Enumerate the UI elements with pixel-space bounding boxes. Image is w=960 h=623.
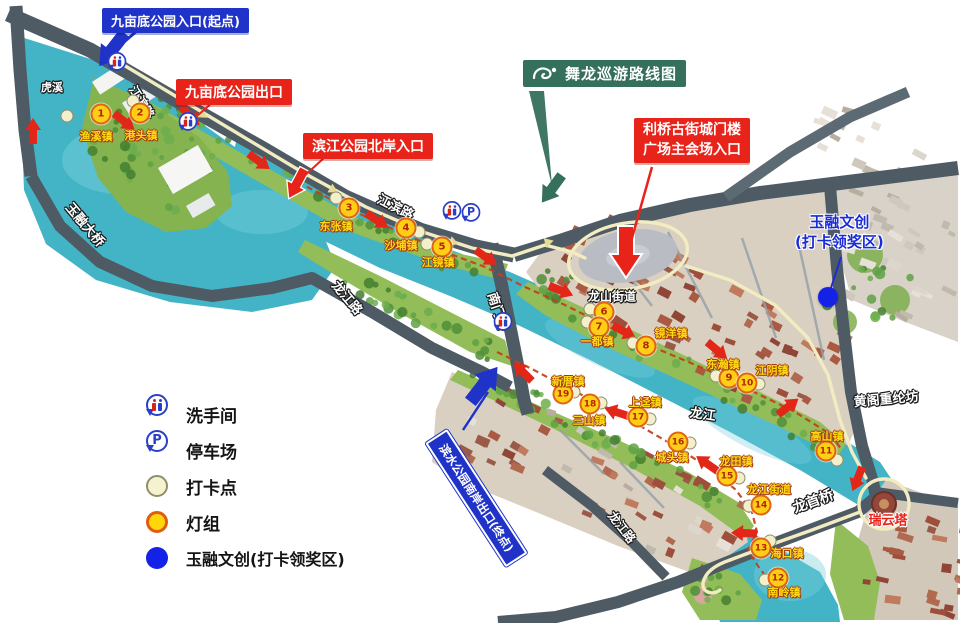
legend: 洗手间 P 停车场 打卡点 灯组 玉融文创(打卡领奖区) <box>142 402 345 570</box>
map-label-0: 虎溪 <box>41 79 63 95</box>
stop-label-13: 海口镇 <box>771 545 804 561</box>
title-text: 舞龙巡游路线图 <box>565 63 677 84</box>
main-venue-banner: 利桥古街城门楼 广场主会场入口 <box>634 118 750 163</box>
checkpoint-dot-icon <box>146 475 168 497</box>
main-venue-line2: 广场主会场入口 <box>643 141 741 161</box>
toilet-pin-icon <box>443 201 462 236</box>
stop-marker-2: 2 <box>130 103 151 124</box>
stop-label-18: 三山镇 <box>573 412 606 428</box>
stop-marker-13: 13 <box>751 538 772 559</box>
award-area-line2: (打卡领奖区) <box>795 232 884 252</box>
map-label-11: 瑞云塔 <box>868 510 907 529</box>
stop-label-15: 龙田镇 <box>720 453 753 469</box>
legend-item-checkpoint: 打卡点 <box>142 474 345 498</box>
north-bank-entrance-banner: 滨江公园北岸入口 <box>303 133 433 159</box>
stop-label-12: 南岭镇 <box>768 584 801 600</box>
title-banner: 舞龙巡游路线图 <box>523 60 686 87</box>
stop-label-19: 新厝镇 <box>552 373 585 389</box>
stop-marker-14: 14 <box>751 495 772 516</box>
stop-marker-10: 10 <box>737 373 758 394</box>
toilet-pin-icon <box>146 394 168 435</box>
parking-pin-icon: P <box>146 430 168 471</box>
stop-label-11: 高山镇 <box>811 428 844 444</box>
legend-label-parking: 停车场 <box>186 438 237 463</box>
stop-label-9: 东瀚镇 <box>707 356 740 372</box>
legend-label-lamp: 灯组 <box>186 510 220 535</box>
stop-label-4: 沙埔镇 <box>385 237 418 253</box>
legend-label-award: 玉融文创(打卡领奖区) <box>186 546 345 570</box>
stop-label-1: 渔溪镇 <box>80 128 113 144</box>
stop-label-16: 城头镇 <box>656 449 689 465</box>
parking-pin-icon: P <box>462 203 481 238</box>
stop-marker-1: 1 <box>91 104 112 125</box>
legend-item-parking: P 停车场 <box>142 438 345 462</box>
legend-label-checkpoint: 打卡点 <box>186 474 237 499</box>
legend-item-lamp: 灯组 <box>142 510 345 534</box>
stop-label-14: 龙江街道 <box>747 481 791 497</box>
stop-marker-3: 3 <box>339 198 360 219</box>
stop-label-2: 港头镇 <box>125 127 158 143</box>
stop-label-7: 一都镇 <box>581 333 614 349</box>
lamp-dot-icon <box>146 511 168 533</box>
legend-label-toilet: 洗手间 <box>186 402 237 427</box>
park-exit-banner: 九亩底公园出口 <box>176 79 292 105</box>
entrance-banner: 九亩底公园入口(起点) <box>102 8 249 33</box>
legend-item-toilet: 洗手间 <box>142 402 345 426</box>
toilet-pin-icon <box>179 112 198 147</box>
stop-marker-4: 4 <box>396 218 417 239</box>
checkpoint-dot <box>61 110 74 123</box>
toilet-pin-icon <box>108 52 127 87</box>
award-point-dot <box>818 287 838 307</box>
award-dot-icon <box>146 547 168 569</box>
stop-label-10: 江阴镇 <box>756 362 789 378</box>
map-label-7: 龙江 <box>689 402 717 424</box>
stop-label-17: 上迳镇 <box>629 394 662 410</box>
award-area-line1: 玉融文创 <box>795 212 884 232</box>
toilet-pin-icon <box>494 312 513 347</box>
main-venue-line1: 利桥古街城门楼 <box>643 121 741 141</box>
legend-item-award: 玉融文创(打卡领奖区) <box>142 546 345 570</box>
award-area-label: 玉融文创 (打卡领奖区) <box>795 212 884 253</box>
dragon-icon <box>532 65 558 83</box>
stop-label-5: 江镜镇 <box>422 254 455 270</box>
map-label-6: 龙山街道 <box>588 288 636 305</box>
stop-label-8: 镜洋镇 <box>655 325 688 341</box>
stop-label-3: 东张镇 <box>320 218 353 234</box>
stop-marker-8: 8 <box>636 336 657 357</box>
dragon-parade-route-map: 九亩底公园入口(起点) 九亩底公园出口 滨江公园北岸入口 舞龙巡游路线图 利桥古… <box>0 0 960 623</box>
